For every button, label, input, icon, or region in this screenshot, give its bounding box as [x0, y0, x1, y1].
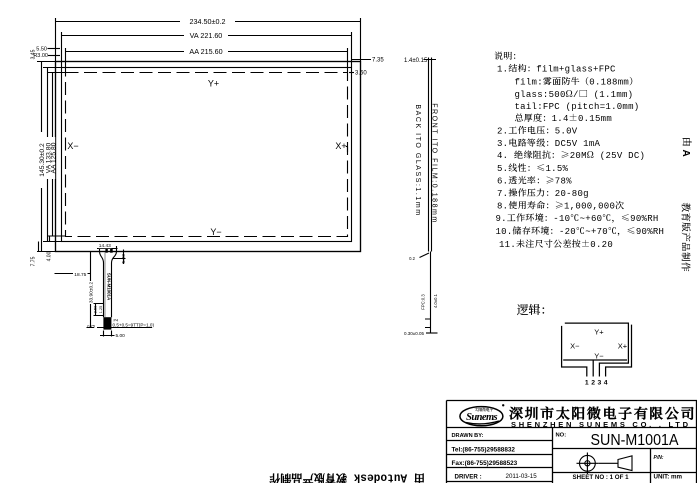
svg-text:0.5+0.5=9TT(P=1.0): 0.5+0.5=9TT(P=1.0) — [113, 323, 155, 328]
svg-text:3.电路等级：DC5V 1mA: 3.电路等级：DC5V 1mA — [497, 136, 601, 149]
svg-text:3.45: 3.45 — [30, 49, 36, 59]
svg-text:Fax:(86-755)29588523: Fax:(86-755)29588523 — [452, 460, 518, 467]
svg-text:AA 125.80: AA 125.80 — [50, 142, 57, 173]
svg-text:VA 221.60: VA 221.60 — [190, 31, 223, 40]
svg-text:4.0±0.1: 4.0±0.1 — [433, 293, 438, 308]
svg-text:Sunems: Sunems — [466, 412, 497, 423]
svg-text:11.未注尺寸公差按±0.20: 11.未注尺寸公差按±0.20 — [499, 237, 613, 250]
svg-text:X−: X− — [67, 141, 78, 151]
svg-text:3.60: 3.60 — [355, 71, 367, 77]
svg-text:3: 3 — [598, 380, 602, 387]
svg-text:Y+: Y+ — [594, 328, 604, 337]
svg-text:Y+: Y+ — [208, 79, 219, 89]
svg-text:Tel:(86-755)29588832: Tel:(86-755)29588832 — [452, 446, 516, 453]
svg-text:A: A — [680, 150, 691, 157]
svg-text:0.30±0.05: 0.30±0.05 — [404, 331, 424, 336]
svg-text:33.90±0.2: 33.90±0.2 — [88, 282, 94, 304]
svg-text:P4: P4 — [114, 319, 119, 323]
svg-text:太阳微电子: 太阳微电子 — [474, 407, 494, 413]
svg-text:7.75: 7.75 — [31, 256, 37, 266]
svg-text:逻辑：: 逻辑： — [517, 301, 553, 318]
svg-text:BACK ITO GLASS:1.1mm: BACK ITO GLASS:1.1mm — [414, 104, 421, 216]
svg-text:Y−: Y− — [594, 351, 604, 360]
svg-text:说明：: 说明： — [494, 49, 522, 62]
svg-text:由: 由 — [681, 137, 696, 147]
svg-text:1.结构：film+glass+FPC: 1.结构：film+glass+FPC — [497, 62, 616, 75]
svg-text:0.2: 0.2 — [409, 256, 415, 261]
svg-text:1.25: 1.25 — [99, 306, 103, 313]
svg-text:film:雾面防牛（0.188mm）: film:雾面防牛（0.188mm） — [515, 75, 639, 88]
svg-text:由 Autodesk 教育版产品制作: 由 Autodesk 教育版产品制作 — [269, 471, 425, 483]
svg-text:4.00: 4.00 — [47, 251, 53, 261]
svg-text:7.35: 7.35 — [372, 58, 384, 64]
svg-text:5.线性：≤1.5%: 5.线性：≤1.5% — [497, 161, 569, 174]
svg-text:234.50±0.2: 234.50±0.2 — [190, 17, 226, 26]
svg-text:1: 1 — [585, 380, 589, 387]
svg-text:教育版产品制作: 教育版产品制作 — [679, 203, 693, 272]
svg-text:SHEET NO : 1 OF 1: SHEET NO : 1 OF 1 — [573, 474, 630, 481]
svg-text:4. 绝缘阻抗：≥20MΩ (25V DC): 4. 绝缘阻抗：≥20MΩ (25V DC) — [497, 148, 645, 161]
svg-text:0.75: 0.75 — [87, 323, 96, 328]
svg-text:5.20: 5.20 — [121, 254, 127, 264]
svg-text:Y−: Y− — [210, 227, 221, 237]
svg-text:SUN-M1001A: SUN-M1001A — [591, 432, 679, 449]
svg-text:9.工作环境：-10℃~+60℃，≤90%RH: 9.工作环境：-10℃~+60℃，≤90%RH — [496, 211, 659, 224]
svg-text:2011-03-15: 2011-03-15 — [506, 473, 538, 480]
svg-text:总厚度：1.4±0.15mm: 总厚度：1.4±0.15mm — [515, 111, 613, 124]
svg-text:DRIVER :: DRIVER : — [455, 474, 482, 481]
svg-text:P/N:: P/N: — [654, 455, 664, 461]
svg-text:DRAWN BY:: DRAWN BY: — [452, 433, 484, 439]
svg-text:2.50: 2.50 — [93, 306, 97, 313]
svg-text:FPC:0.3: FPC:0.3 — [421, 294, 426, 310]
svg-text:SUN-M1001A: SUN-M1001A — [107, 273, 112, 301]
svg-text:UNIT: mm: UNIT: mm — [654, 474, 683, 481]
svg-text:X+: X+ — [335, 141, 346, 151]
svg-text:18.75: 18.75 — [74, 272, 86, 278]
svg-text:14.43: 14.43 — [99, 243, 111, 249]
svg-text:FRONT ITO FILM:0.188mm: FRONT ITO FILM:0.188mm — [430, 103, 437, 224]
svg-text:NO:: NO: — [556, 432, 567, 438]
svg-text:AA 215.60: AA 215.60 — [189, 47, 222, 56]
svg-text:4: 4 — [604, 380, 608, 387]
svg-text:X+: X+ — [618, 342, 628, 351]
svg-text:2: 2 — [591, 380, 595, 387]
svg-text:6.透光率：≥78%: 6.透光率：≥78% — [497, 174, 572, 187]
svg-text:5.50: 5.50 — [36, 47, 47, 53]
svg-text:10.储存环境：-20℃~+70℃，≤90%RH: 10.储存环境：-20℃~+70℃，≤90%RH — [496, 224, 665, 237]
svg-text:X−: X− — [570, 342, 580, 351]
svg-text:8.使用寿命：≥1,000,000次: 8.使用寿命：≥1,000,000次 — [497, 199, 624, 212]
svg-text:5.00: 5.00 — [116, 333, 126, 339]
svg-text:7.操作压力：20-80g: 7.操作压力：20-80g — [497, 186, 589, 199]
svg-text:1.4±0.15: 1.4±0.15 — [404, 58, 428, 64]
svg-text:2.工作电压：5.0V: 2.工作电压：5.0V — [497, 124, 578, 137]
